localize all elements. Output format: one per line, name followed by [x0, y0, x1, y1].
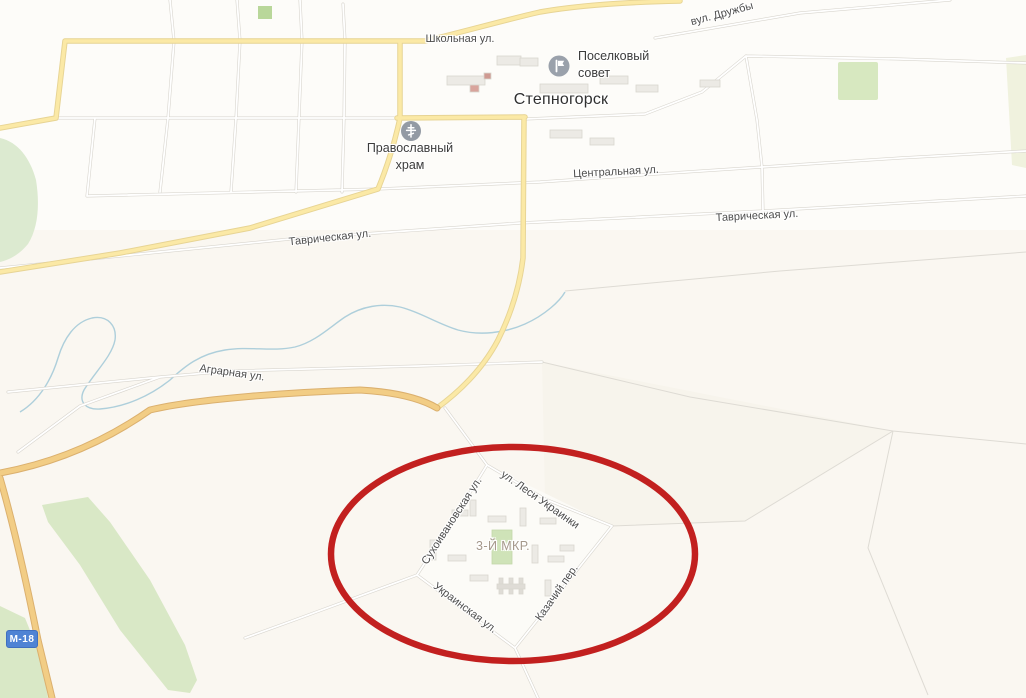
poi-hram-line1: Православный: [352, 140, 468, 157]
poi-label-hram[interactable]: Православный храм: [352, 140, 468, 174]
district-label-3-mkr: 3-Й МКР.: [476, 539, 530, 553]
road-badge-m18: М-18: [6, 630, 38, 648]
poi-sovet-line2: совет: [578, 65, 649, 82]
map-canvas[interactable]: Школьная ул. вул. Дружбы Центральная ул.…: [0, 0, 1026, 698]
poi-label-sovet[interactable]: Поселковый совет: [578, 48, 649, 82]
flag-icon[interactable]: [548, 55, 570, 82]
street-label-shkolnaya: Школьная ул.: [426, 33, 495, 45]
town-label-stepnogorsk: Степногорск: [514, 91, 608, 109]
poi-sovet-line1: Поселковый: [578, 48, 649, 65]
poi-hram-line2: храм: [352, 157, 468, 174]
